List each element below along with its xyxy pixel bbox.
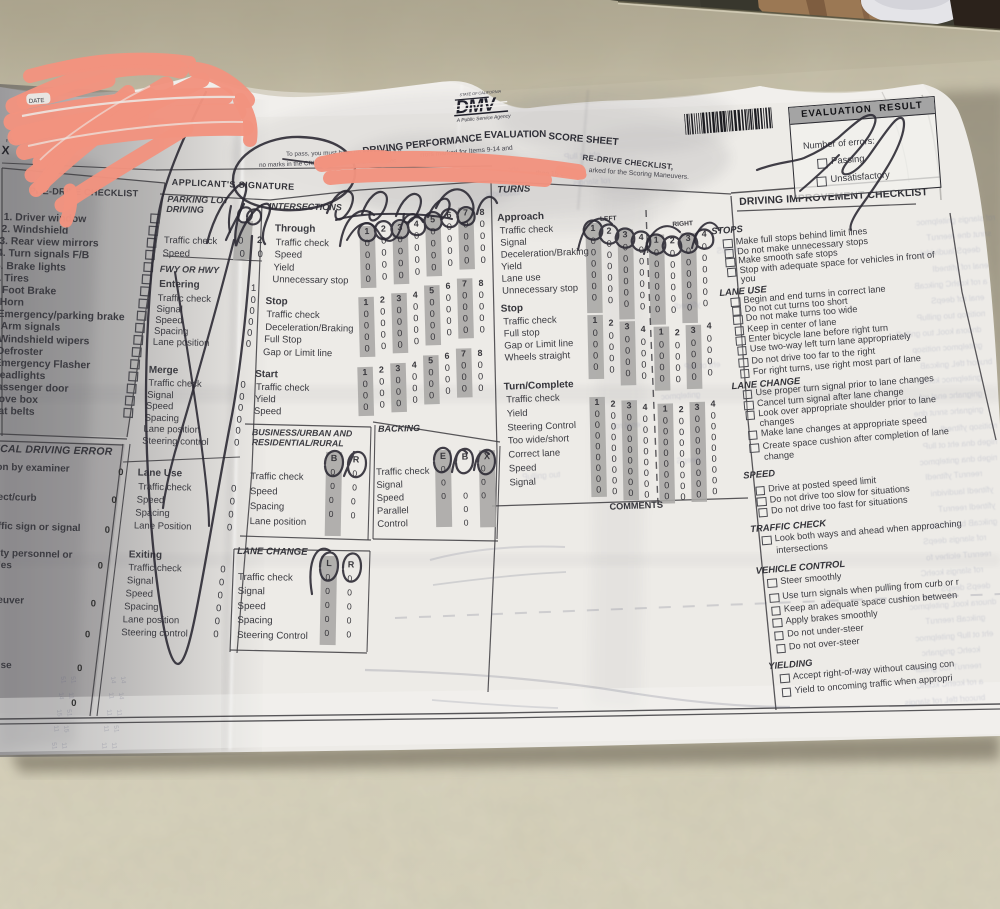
svg-text:DATE: DATE [29, 98, 45, 105]
